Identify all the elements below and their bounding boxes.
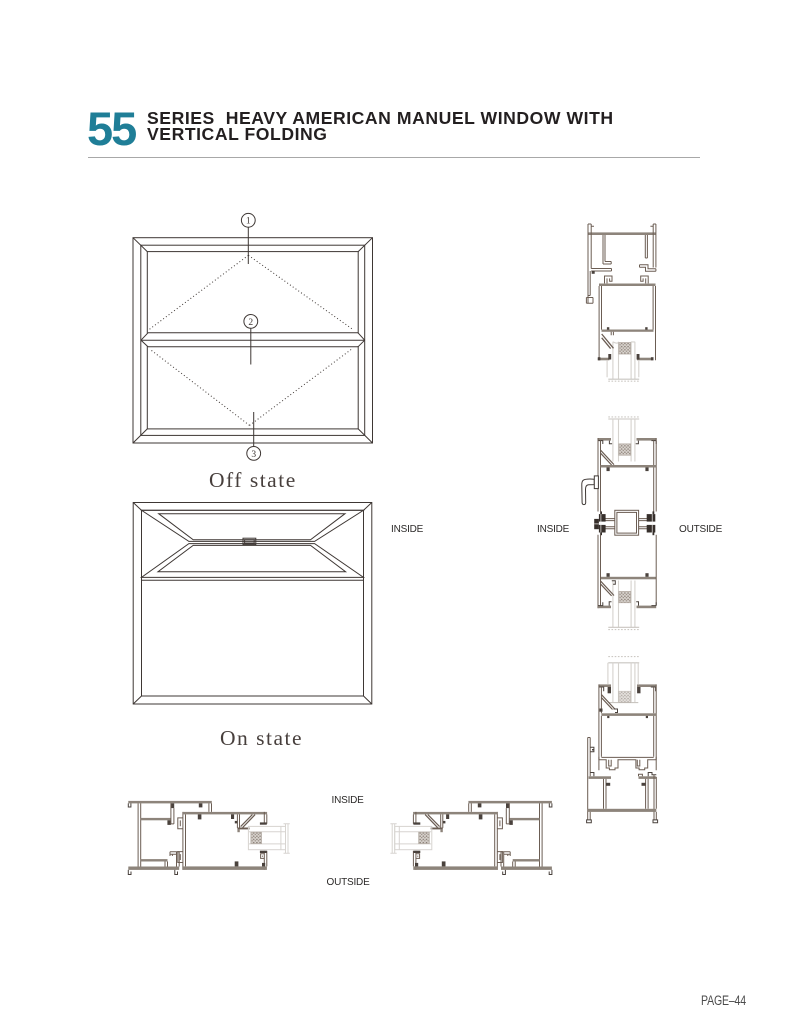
svg-text:3: 3 <box>251 450 256 460</box>
svg-text:2: 2 <box>248 318 253 328</box>
svg-text:1: 1 <box>246 217 251 227</box>
